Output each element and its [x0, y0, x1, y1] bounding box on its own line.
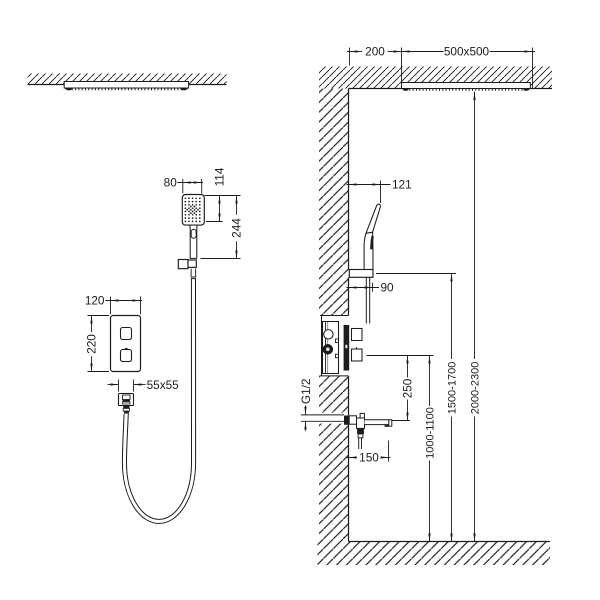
svg-text:150: 150 — [359, 451, 379, 465]
svg-text:80: 80 — [164, 176, 178, 190]
svg-text:1500-1700: 1500-1700 — [446, 362, 458, 415]
svg-text:G1/2: G1/2 — [299, 379, 313, 405]
svg-text:220: 220 — [85, 334, 99, 354]
svg-text:114: 114 — [213, 167, 227, 186]
svg-text:244: 244 — [230, 218, 244, 238]
svg-text:120: 120 — [85, 294, 105, 308]
svg-text:90: 90 — [381, 281, 395, 295]
svg-text:121: 121 — [392, 178, 412, 192]
svg-text:200: 200 — [365, 45, 385, 59]
svg-text:500x500: 500x500 — [444, 45, 490, 59]
svg-text:250: 250 — [401, 378, 415, 398]
svg-text:2000-2300: 2000-2300 — [469, 362, 481, 415]
svg-text:55x55: 55x55 — [147, 378, 180, 392]
svg-text:1000-1100: 1000-1100 — [424, 407, 436, 459]
